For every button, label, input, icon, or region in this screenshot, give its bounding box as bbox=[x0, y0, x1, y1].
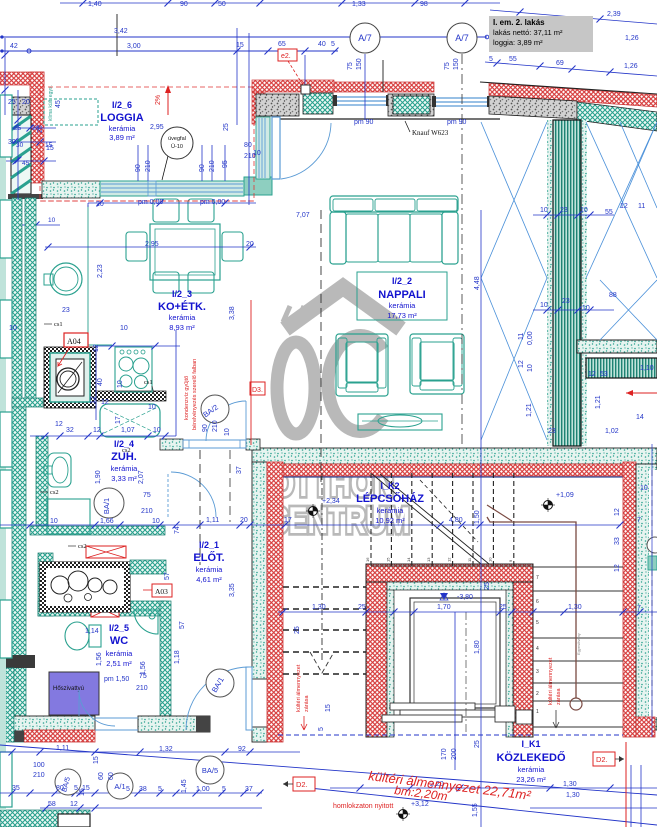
svg-text:6: 6 bbox=[536, 599, 539, 605]
svg-text:LÉPCSŐHÁZ: LÉPCSŐHÁZ bbox=[356, 492, 424, 505]
svg-text:210: 210 bbox=[136, 685, 148, 692]
svg-text:üvegfal: üvegfal bbox=[168, 136, 186, 142]
svg-text:3: 3 bbox=[536, 669, 539, 675]
svg-text:5: 5 bbox=[222, 786, 226, 793]
svg-text:A/7: A/7 bbox=[358, 33, 372, 43]
svg-text:BA/1: BA/1 bbox=[102, 498, 111, 514]
svg-text:5: 5 bbox=[331, 41, 335, 48]
svg-text:75: 75 bbox=[347, 62, 354, 70]
svg-text:D3.: D3. bbox=[252, 387, 263, 394]
svg-text:11: 11 bbox=[638, 203, 645, 210]
svg-text:10: 10 bbox=[153, 427, 161, 434]
svg-text:1,30: 1,30 bbox=[568, 604, 582, 611]
svg-text:25: 25 bbox=[499, 604, 507, 611]
svg-text:30: 30 bbox=[8, 139, 16, 146]
svg-text:1,21: 1,21 bbox=[595, 395, 602, 409]
svg-text:7: 7 bbox=[536, 575, 539, 581]
svg-text:1,56: 1,56 bbox=[96, 652, 103, 666]
svg-text:12: 12 bbox=[90, 396, 97, 404]
svg-text:12: 12 bbox=[447, 557, 452, 562]
svg-text:3,38: 3,38 bbox=[229, 306, 236, 320]
svg-text:1,45: 1,45 bbox=[181, 779, 188, 793]
svg-text:kerámia: kerámia bbox=[377, 506, 405, 515]
svg-text:45: 45 bbox=[55, 100, 62, 108]
svg-text:kerámia: kerámia bbox=[389, 301, 417, 310]
svg-text:homlokzaton nyitott: homlokzaton nyitott bbox=[333, 803, 393, 810]
svg-text:cs2: cs2 bbox=[122, 447, 131, 454]
svg-text:150: 150 bbox=[453, 58, 460, 70]
svg-text:1,14: 1,14 bbox=[85, 628, 99, 635]
svg-text:35: 35 bbox=[12, 785, 20, 792]
svg-text:74: 74 bbox=[174, 526, 181, 534]
svg-text:2,39: 2,39 bbox=[607, 11, 621, 18]
svg-text:pm 0,00: pm 0,00 bbox=[138, 199, 163, 206]
svg-text:1,11: 1,11 bbox=[206, 517, 219, 524]
svg-text:10: 10 bbox=[117, 380, 124, 388]
svg-text:80: 80 bbox=[244, 142, 252, 149]
svg-text:10: 10 bbox=[540, 302, 548, 309]
svg-text:10: 10 bbox=[253, 150, 261, 157]
svg-text:88: 88 bbox=[609, 292, 617, 299]
svg-text:2,95: 2,95 bbox=[150, 124, 164, 131]
svg-text:20: 20 bbox=[37, 125, 44, 133]
svg-text:1,30: 1,30 bbox=[312, 604, 326, 611]
svg-text:100: 100 bbox=[33, 762, 45, 769]
svg-text:5: 5 bbox=[158, 786, 162, 793]
svg-text:1,66: 1,66 bbox=[100, 518, 114, 525]
svg-text:+1,09: +1,09 bbox=[556, 492, 574, 499]
svg-text:BA/5: BA/5 bbox=[202, 766, 218, 775]
svg-text:1,11: 1,11 bbox=[56, 745, 69, 752]
svg-text:10: 10 bbox=[50, 518, 58, 525]
svg-text:10: 10 bbox=[9, 325, 17, 332]
svg-text:kültéri álmennyezet: kültéri álmennyezet bbox=[548, 657, 554, 705]
svg-text:3,35: 3,35 bbox=[229, 583, 236, 597]
svg-text:1,26: 1,26 bbox=[625, 35, 639, 42]
svg-text:7: 7 bbox=[637, 517, 641, 524]
svg-text:25: 25 bbox=[294, 626, 301, 634]
svg-text:1,00: 1,00 bbox=[196, 786, 210, 793]
svg-text:bérelvényezés szerelő falban: bérelvényezés szerelő falban bbox=[192, 359, 198, 430]
svg-text:2: 2 bbox=[536, 691, 539, 697]
svg-text:I. em. 2. lakás: I. em. 2. lakás bbox=[493, 18, 545, 27]
svg-text:2,07: 2,07 bbox=[138, 470, 145, 484]
svg-text:4,61 m²: 4,61 m² bbox=[196, 575, 222, 584]
svg-text:210: 210 bbox=[145, 160, 152, 172]
svg-text:12: 12 bbox=[70, 801, 78, 808]
svg-text:pm 90: pm 90 bbox=[447, 119, 467, 126]
svg-text:150: 150 bbox=[356, 58, 363, 70]
svg-text:e2.: e2. bbox=[281, 53, 291, 60]
svg-text:pm 1,50: pm 1,50 bbox=[104, 676, 129, 683]
svg-text:12: 12 bbox=[588, 371, 596, 378]
svg-text:170: 170 bbox=[441, 748, 448, 760]
svg-text:cs1: cs1 bbox=[144, 379, 153, 386]
svg-text:65: 65 bbox=[278, 41, 286, 48]
svg-text:23: 23 bbox=[562, 298, 570, 305]
svg-text:pm 0,00: pm 0,00 bbox=[200, 199, 225, 206]
svg-text:kültéri álmennyezet: kültéri álmennyezet bbox=[296, 664, 302, 712]
svg-text:23: 23 bbox=[62, 307, 70, 314]
svg-text:42: 42 bbox=[10, 43, 18, 50]
svg-text:WC: WC bbox=[110, 635, 128, 647]
svg-text:20: 20 bbox=[246, 241, 254, 248]
svg-text:10: 10 bbox=[224, 428, 231, 436]
svg-text:kondenzvíz gyűjtő: kondenzvíz gyűjtő bbox=[184, 376, 190, 420]
svg-text:cs1: cs1 bbox=[54, 321, 63, 328]
svg-text:ELŐT.: ELŐT. bbox=[193, 551, 224, 564]
svg-text:14: 14 bbox=[636, 414, 644, 421]
svg-text:15: 15 bbox=[46, 145, 54, 152]
svg-text:40: 40 bbox=[97, 378, 104, 386]
svg-text:37: 37 bbox=[245, 786, 253, 793]
svg-text:kerámia: kerámia bbox=[196, 565, 224, 574]
svg-text:4,80: 4,80 bbox=[449, 517, 463, 524]
svg-text:1,10: 1,10 bbox=[640, 365, 654, 372]
svg-text:4: 4 bbox=[536, 646, 539, 652]
svg-text:20: 20 bbox=[22, 99, 30, 106]
svg-text:Egyesítvény: Egyesítvény bbox=[576, 633, 581, 655]
svg-text:53: 53 bbox=[600, 371, 608, 378]
svg-text:55: 55 bbox=[509, 56, 517, 63]
svg-text:11: 11 bbox=[518, 333, 525, 340]
svg-text:5: 5 bbox=[318, 727, 325, 731]
svg-text:NAPPALI: NAPPALI bbox=[378, 289, 425, 301]
svg-text:80: 80 bbox=[56, 785, 64, 792]
svg-text:210: 210 bbox=[33, 772, 45, 779]
svg-text:12: 12 bbox=[518, 360, 525, 368]
svg-text:kerámia: kerámia bbox=[106, 649, 134, 658]
svg-text:A/7: A/7 bbox=[455, 33, 469, 43]
svg-text:1,55: 1,55 bbox=[472, 803, 479, 817]
svg-text:1,80: 1,80 bbox=[474, 640, 481, 654]
svg-text:10: 10 bbox=[540, 207, 548, 214]
svg-text:15: 15 bbox=[236, 42, 244, 49]
svg-text:33: 33 bbox=[614, 537, 621, 545]
svg-text:5: 5 bbox=[536, 620, 539, 626]
svg-text:25: 25 bbox=[474, 740, 481, 748]
svg-text:zárása: zárása bbox=[556, 688, 562, 705]
svg-text:I/2_2: I/2_2 bbox=[392, 276, 412, 286]
svg-text:25: 25 bbox=[484, 582, 491, 590]
svg-text:45: 45 bbox=[22, 160, 30, 167]
svg-text:10: 10 bbox=[527, 364, 534, 372]
svg-text:10,92 m²: 10,92 m² bbox=[375, 516, 405, 525]
svg-text:210: 210 bbox=[209, 160, 216, 172]
svg-text:5: 5 bbox=[126, 786, 130, 793]
svg-text:58: 58 bbox=[48, 801, 56, 808]
svg-text:32: 32 bbox=[66, 427, 74, 434]
svg-text:14: 14 bbox=[406, 557, 411, 562]
svg-text:75: 75 bbox=[444, 62, 451, 70]
svg-text:zárása: zárása bbox=[304, 695, 310, 712]
svg-text:I/2_6: I/2_6 bbox=[112, 100, 132, 110]
svg-text:1,30: 1,30 bbox=[563, 781, 577, 788]
svg-text:lakás nettó: 37,11 m²: lakás nettó: 37,11 m² bbox=[493, 28, 563, 37]
svg-text:1,70: 1,70 bbox=[437, 604, 451, 611]
svg-text:I_K1: I_K1 bbox=[521, 739, 540, 749]
svg-text:cs2: cs2 bbox=[50, 489, 59, 496]
svg-text:92: 92 bbox=[238, 746, 246, 753]
svg-text:12: 12 bbox=[614, 508, 621, 516]
svg-text:3,42: 3,42 bbox=[114, 28, 128, 35]
svg-text:60: 60 bbox=[98, 772, 105, 780]
svg-text:20: 20 bbox=[240, 517, 248, 524]
svg-text:57: 57 bbox=[164, 572, 171, 580]
svg-text:D2.: D2. bbox=[296, 780, 308, 789]
svg-text:2,95: 2,95 bbox=[145, 241, 159, 248]
svg-text:1,90: 1,90 bbox=[95, 470, 102, 484]
svg-text:23,26 m²: 23,26 m² bbox=[516, 775, 546, 784]
svg-text:A04: A04 bbox=[67, 337, 81, 346]
svg-text:Ü-10: Ü-10 bbox=[171, 143, 183, 150]
svg-text:1,30: 1,30 bbox=[566, 792, 580, 799]
svg-text:60: 60 bbox=[108, 772, 115, 780]
svg-text:75: 75 bbox=[143, 492, 151, 499]
svg-text:1,33: 1,33 bbox=[352, 1, 366, 8]
svg-text:38: 38 bbox=[139, 786, 147, 793]
svg-text:40: 40 bbox=[318, 41, 326, 48]
svg-text:23: 23 bbox=[548, 428, 556, 435]
svg-text:klíma kült. egys.: klíma kült. egys. bbox=[48, 85, 54, 121]
svg-text:210: 210 bbox=[212, 420, 219, 432]
svg-text:5: 5 bbox=[489, 56, 493, 63]
svg-text:12: 12 bbox=[614, 564, 621, 572]
svg-text:17: 17 bbox=[284, 517, 292, 524]
svg-text:1,40: 1,40 bbox=[88, 1, 102, 8]
svg-text:10: 10 bbox=[120, 325, 128, 332]
svg-text:2%: 2% bbox=[155, 95, 162, 105]
svg-text:210: 210 bbox=[141, 508, 153, 515]
svg-text:+2,34: +2,34 bbox=[322, 498, 340, 505]
svg-text:1,18: 1,18 bbox=[174, 650, 181, 664]
svg-text:17,73 m²: 17,73 m² bbox=[387, 311, 417, 320]
svg-text:KÖZLEKEDŐ: KÖZLEKEDŐ bbox=[496, 751, 566, 764]
svg-text:90: 90 bbox=[180, 1, 188, 8]
svg-text:kerámia: kerámia bbox=[169, 313, 197, 322]
svg-text:3,00: 3,00 bbox=[127, 43, 141, 50]
svg-text:98: 98 bbox=[420, 1, 428, 8]
svg-text:30: 30 bbox=[16, 142, 24, 149]
svg-text:3,33 m²: 3,33 m² bbox=[111, 474, 137, 483]
svg-text:I/2_3: I/2_3 bbox=[172, 289, 192, 299]
svg-text:7,07: 7,07 bbox=[296, 212, 310, 219]
svg-text:10: 10 bbox=[487, 557, 492, 562]
svg-text:90: 90 bbox=[202, 424, 209, 432]
svg-text:10: 10 bbox=[148, 404, 156, 411]
svg-text:10: 10 bbox=[580, 207, 588, 214]
svg-text:10: 10 bbox=[48, 217, 56, 224]
svg-text:5: 5 bbox=[74, 785, 78, 792]
svg-text:I/2_5: I/2_5 bbox=[109, 623, 129, 633]
svg-text:1: 1 bbox=[536, 709, 539, 715]
svg-text:17: 17 bbox=[115, 416, 122, 424]
svg-text:0,00: 0,00 bbox=[527, 331, 534, 345]
svg-text:15: 15 bbox=[93, 756, 100, 764]
svg-text:I_K2: I_K2 bbox=[380, 481, 399, 491]
svg-text:Knauf W623: Knauf W623 bbox=[412, 129, 449, 137]
svg-text:50: 50 bbox=[218, 1, 226, 8]
svg-text:15: 15 bbox=[385, 557, 390, 562]
svg-text:D2.: D2. bbox=[596, 755, 608, 764]
svg-text:12: 12 bbox=[93, 344, 100, 352]
svg-text:3,89 m²: 3,89 m² bbox=[109, 133, 135, 142]
svg-text:25: 25 bbox=[358, 604, 366, 611]
svg-text:1,50: 1,50 bbox=[474, 510, 481, 524]
svg-text:10: 10 bbox=[152, 518, 160, 525]
svg-text:15: 15 bbox=[325, 704, 332, 712]
svg-text:25: 25 bbox=[223, 123, 230, 131]
svg-text:2,23: 2,23 bbox=[97, 264, 104, 278]
svg-text:kerámia: kerámia bbox=[518, 765, 546, 774]
svg-text:+3,12: +3,12 bbox=[411, 801, 429, 808]
svg-text:4,48: 4,48 bbox=[474, 276, 481, 290]
svg-text:10: 10 bbox=[640, 485, 648, 492]
svg-text:1,32: 1,32 bbox=[159, 746, 173, 753]
svg-text:69: 69 bbox=[556, 60, 564, 67]
svg-text:cs2: cs2 bbox=[78, 543, 87, 550]
svg-text:90: 90 bbox=[135, 164, 142, 172]
svg-text:15: 15 bbox=[79, 788, 86, 796]
svg-text:16: 16 bbox=[365, 557, 370, 562]
svg-text:200: 200 bbox=[451, 748, 458, 760]
svg-text:kerámia: kerámia bbox=[111, 464, 139, 473]
svg-text:90: 90 bbox=[199, 164, 206, 172]
svg-text:1,21: 1,21 bbox=[526, 403, 533, 417]
svg-text:12: 12 bbox=[93, 427, 101, 434]
svg-text:57: 57 bbox=[179, 621, 186, 629]
svg-text:A03: A03 bbox=[155, 587, 168, 596]
svg-text:2,51 m²: 2,51 m² bbox=[106, 659, 132, 668]
svg-text:20: 20 bbox=[96, 201, 104, 208]
svg-text:LOGGIA: LOGGIA bbox=[100, 112, 143, 124]
svg-text:1,02: 1,02 bbox=[605, 428, 619, 435]
svg-text:23: 23 bbox=[560, 207, 568, 214]
svg-text:KO+ÉTK.: KO+ÉTK. bbox=[158, 300, 206, 313]
svg-text:1,26: 1,26 bbox=[624, 63, 638, 70]
svg-text:7: 7 bbox=[637, 605, 641, 612]
svg-text:25: 25 bbox=[8, 99, 16, 106]
svg-text:13: 13 bbox=[426, 557, 431, 562]
svg-text:37: 37 bbox=[236, 466, 243, 474]
svg-text:I/2_1: I/2_1 bbox=[199, 540, 219, 550]
svg-text:loggia: 3,89 m²: loggia: 3,89 m² bbox=[493, 38, 543, 47]
svg-text:8,93 m²: 8,93 m² bbox=[169, 323, 195, 332]
svg-text:pm 90: pm 90 bbox=[354, 119, 374, 126]
svg-text:1,07: 1,07 bbox=[121, 427, 135, 434]
svg-text:12: 12 bbox=[101, 399, 109, 406]
svg-text:A/1: A/1 bbox=[114, 782, 125, 791]
svg-text:95: 95 bbox=[222, 160, 229, 168]
svg-text:12: 12 bbox=[55, 421, 63, 428]
svg-text:kerámia: kerámia bbox=[109, 124, 137, 133]
svg-text:-3,80: -3,80 bbox=[457, 594, 473, 601]
svg-text:12: 12 bbox=[620, 203, 628, 210]
svg-text:1,56: 1,56 bbox=[140, 661, 147, 675]
